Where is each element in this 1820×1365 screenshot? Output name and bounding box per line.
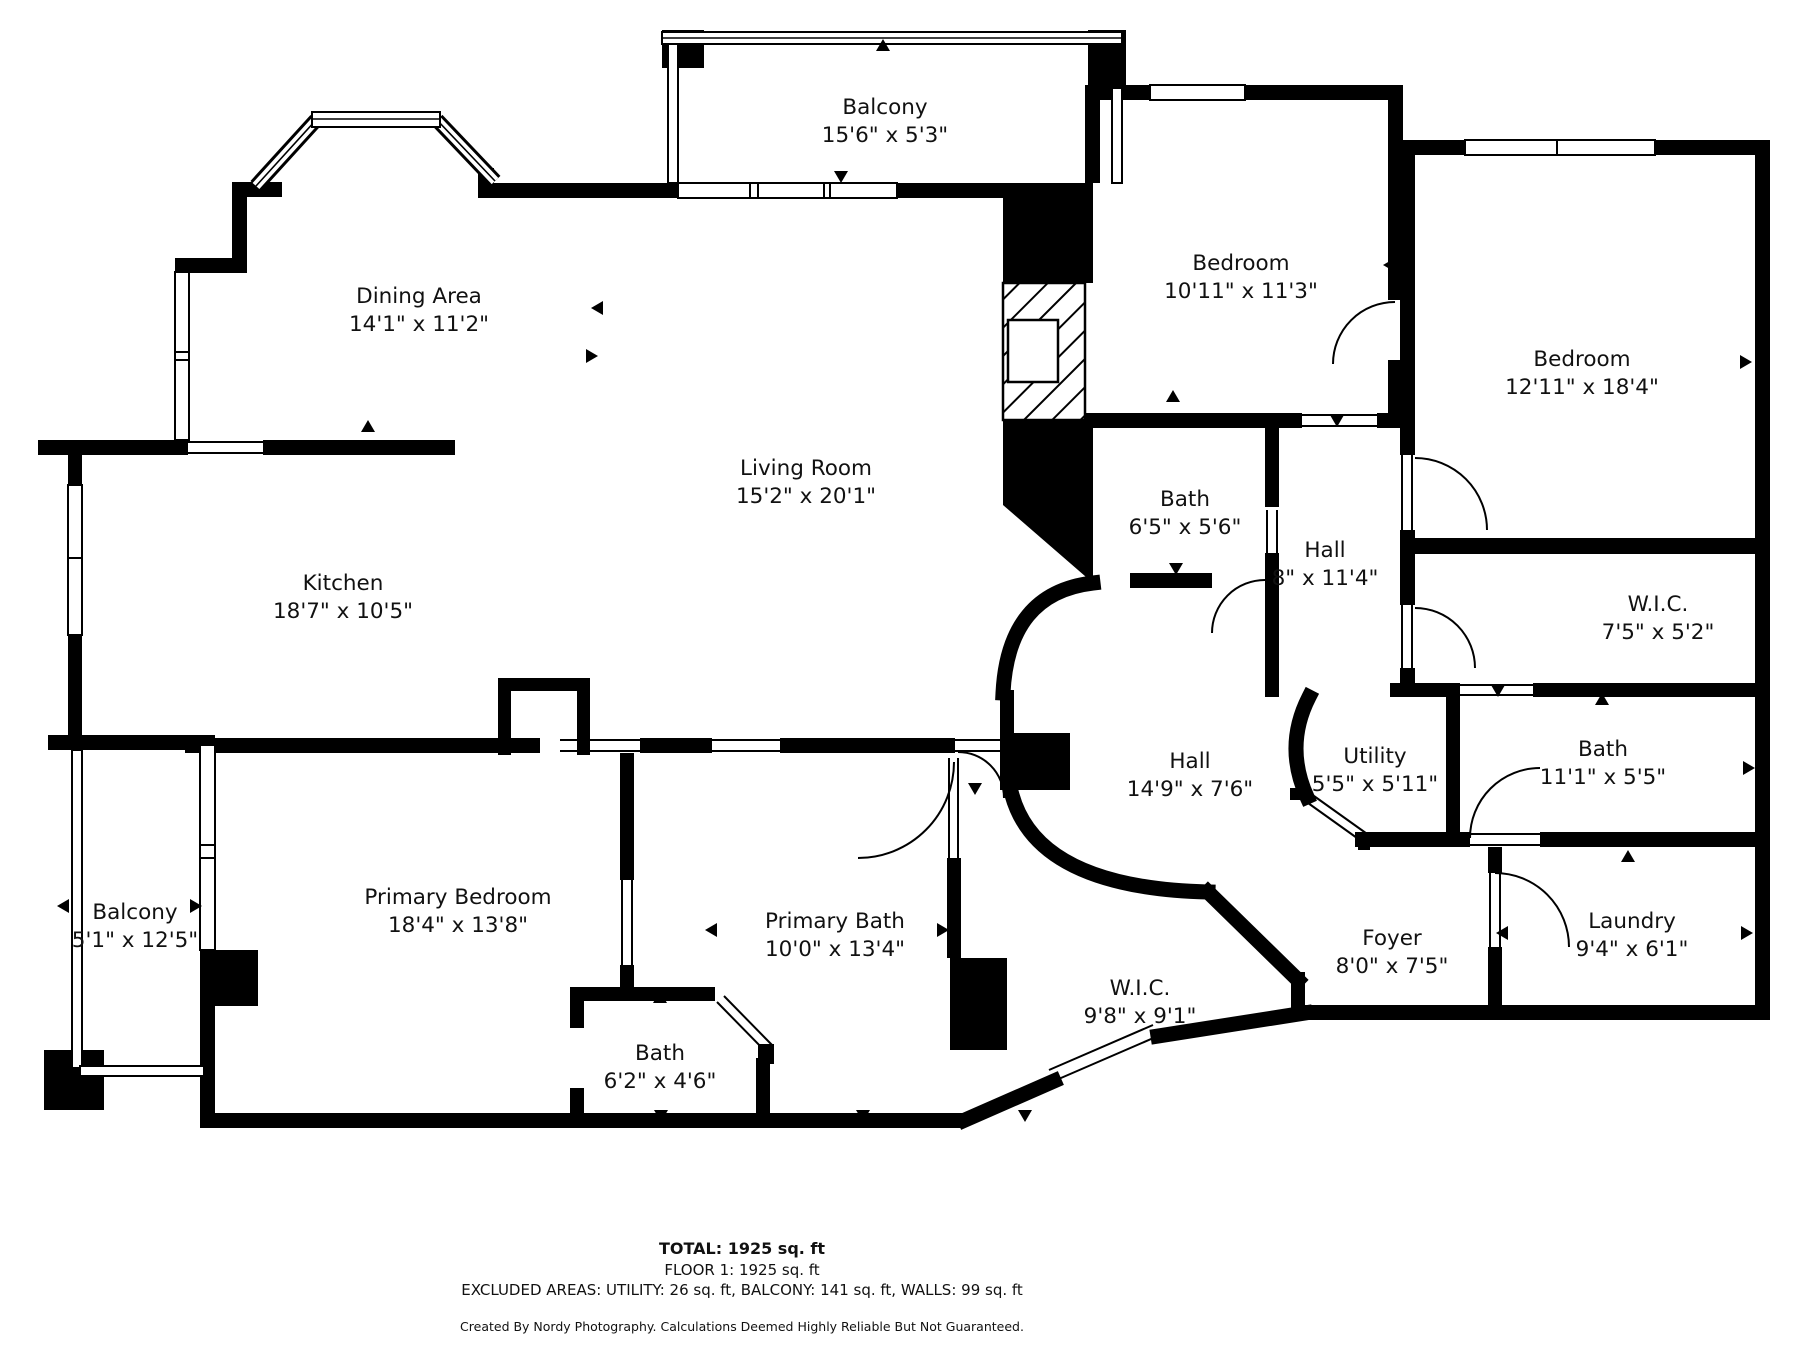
room-label-bedroom-1: Bedroom10'11" x 11'3": [1164, 250, 1318, 306]
room-label-balcony-left: Balcony5'1" x 12'5": [72, 899, 198, 955]
room-label-bath-1: Bath6'5" x 5'6": [1129, 486, 1242, 542]
excluded-area-text: EXCLUDED AREAS: UTILITY: 26 sq. ft, BALC…: [460, 1280, 1024, 1300]
room-label-primary-bath: Primary Bath10'0" x 13'4": [765, 908, 905, 964]
room-label-foyer: Foyer8'0" x 7'5": [1336, 925, 1449, 981]
curved-walls: [965, 583, 1309, 1120]
room-label-bedroom-2: Bedroom12'11" x 18'4": [1505, 346, 1659, 402]
total-area-text: TOTAL: 1925 sq. ft: [460, 1238, 1024, 1260]
footer-summary: TOTAL: 1925 sq. ft FLOOR 1: 1925 sq. ft …: [460, 1238, 1024, 1336]
room-label-bath-3: Bath6'2" x 4'6": [604, 1040, 717, 1096]
room-label-kitchen: Kitchen18'7" x 10'5": [273, 570, 413, 626]
floorplan-page: Balcony15'6" x 5'3" Dining Area14'1" x 1…: [0, 0, 1820, 1365]
floor-area-text: FLOOR 1: 1925 sq. ft: [460, 1260, 1024, 1280]
room-label-utility: Utility5'5" x 5'11": [1312, 743, 1438, 799]
room-label-hall-central: Hall14'9" x 7'6": [1127, 748, 1253, 804]
floorplan-drawing: [0, 0, 1820, 1365]
room-label-bath-2: Bath11'1" x 5'5": [1540, 736, 1666, 792]
room-label-wic-right: W.I.C.7'5" x 5'2": [1602, 591, 1715, 647]
room-label-laundry: Laundry9'4" x 6'1": [1576, 908, 1689, 964]
room-label-wic-primary: W.I.C.9'8" x 9'1": [1084, 975, 1197, 1031]
room-label-hall-upper: Hall8" x 11'4": [1272, 537, 1379, 593]
door-arcs: [858, 302, 1569, 947]
room-label-living-room: Living Room15'2" x 20'1": [736, 455, 876, 511]
room-label-dining-area: Dining Area14'1" x 11'2": [349, 283, 489, 339]
room-label-balcony-top: Balcony15'6" x 5'3": [822, 94, 948, 150]
chimney-hatch: [1003, 283, 1085, 420]
room-label-primary-bedroom: Primary Bedroom18'4" x 13'8": [364, 884, 551, 940]
credit-text: Created By Nordy Photography. Calculatio…: [460, 1318, 1024, 1336]
